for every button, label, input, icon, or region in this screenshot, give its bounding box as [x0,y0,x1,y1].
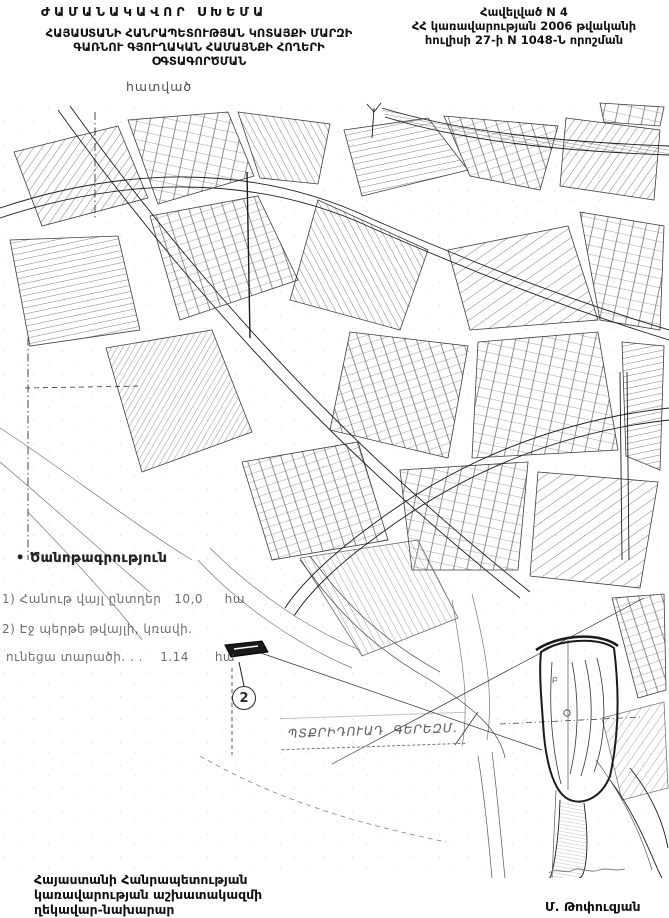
footer-line-3: ղեկավար-նախարար [34,902,262,917]
footer-official-title: Հայաստանի Հանրապետության կառավարության ա… [34,872,262,917]
legend-item-2: 2) Էջ պերթե թվայլի, կռավի. [2,622,193,636]
map-drawing [0,98,669,878]
appendix-reference: Հավելված N 4 ՀՀ կառավարության 2006 թվակա… [388,5,660,47]
legend-bullet: • [16,551,25,566]
legend-item-3: ունեցա տարածի. . . 1.14 հա [6,650,235,664]
scanned-map-page: ԺԱՄԱՆԱԿԱՎՈՐ ՍԽԵՄԱ ՀԱՅԱՍՏԱՆԻ ՀԱՆՐԱՊԵՏՈՒԹՅ… [0,0,669,918]
page-subtitle: ՀԱՅԱՍՏԱՆԻ ՀԱՆՐԱՊԵՏՈՒԹՅԱՆ ԿՈՏԱՅՔԻ ՄԱՐԶԻ Գ… [6,26,392,68]
subtitle-line-2: ԳԱՌՆՈՒ ԳՅՈՒՂԱԿԱՆ ՀԱՄԱՅՆՔԻ ՀՈՂԵՐԻ [6,40,392,54]
appendix-line-3: հուլիսի 27-ի N 1048-Ն որոշման [388,33,660,47]
subtitle-line-1: ՀԱՅԱՍՏԱՆԻ ՀԱՆՐԱՊԵՏՈՒԹՅԱՆ ԿՈՏԱՅՔԻ ՄԱՐԶԻ [6,26,392,40]
signature-scribble [545,864,635,878]
site-marker-2: 2 [232,686,256,710]
section-label: հատված [126,79,206,94]
cemetery-label: ՊՏՔՐԻԴՈՒԱԴ ԳԵՐԵԶՄ. [288,721,459,741]
footer-line-2: կառավարության աշխատակազմի [34,887,262,902]
legend-heading-text: Ծանոթագրություն [30,551,168,566]
signature-name: Մ. Թոփուզյան [545,899,641,914]
appendix-line-1: Հավելված N 4 [388,5,660,19]
appendix-line-2: ՀՀ կառավարության 2006 թվականի [388,19,660,33]
legend-heading: • Ծանոթագրություն [16,551,167,566]
legend-item-1: 1) Հանութ վայլ ընտղեր 10,0 հա [2,592,245,606]
area-letter: Բ [552,676,558,685]
subtitle-line-3: ՕԳՏԱԳՈՐԾՄԱՆ [6,54,392,68]
footer-line-1: Հայաստանի Հանրապետության [34,872,262,887]
cemetery-label-box: ՊՏՔՐԻԴՈՒԱԴ ԳԵՐԵԶՄ. [280,712,465,750]
page-title: ԺԱՄԱՆԱԿԱՎՈՐ ՍԽԵՄԱ [28,4,280,19]
